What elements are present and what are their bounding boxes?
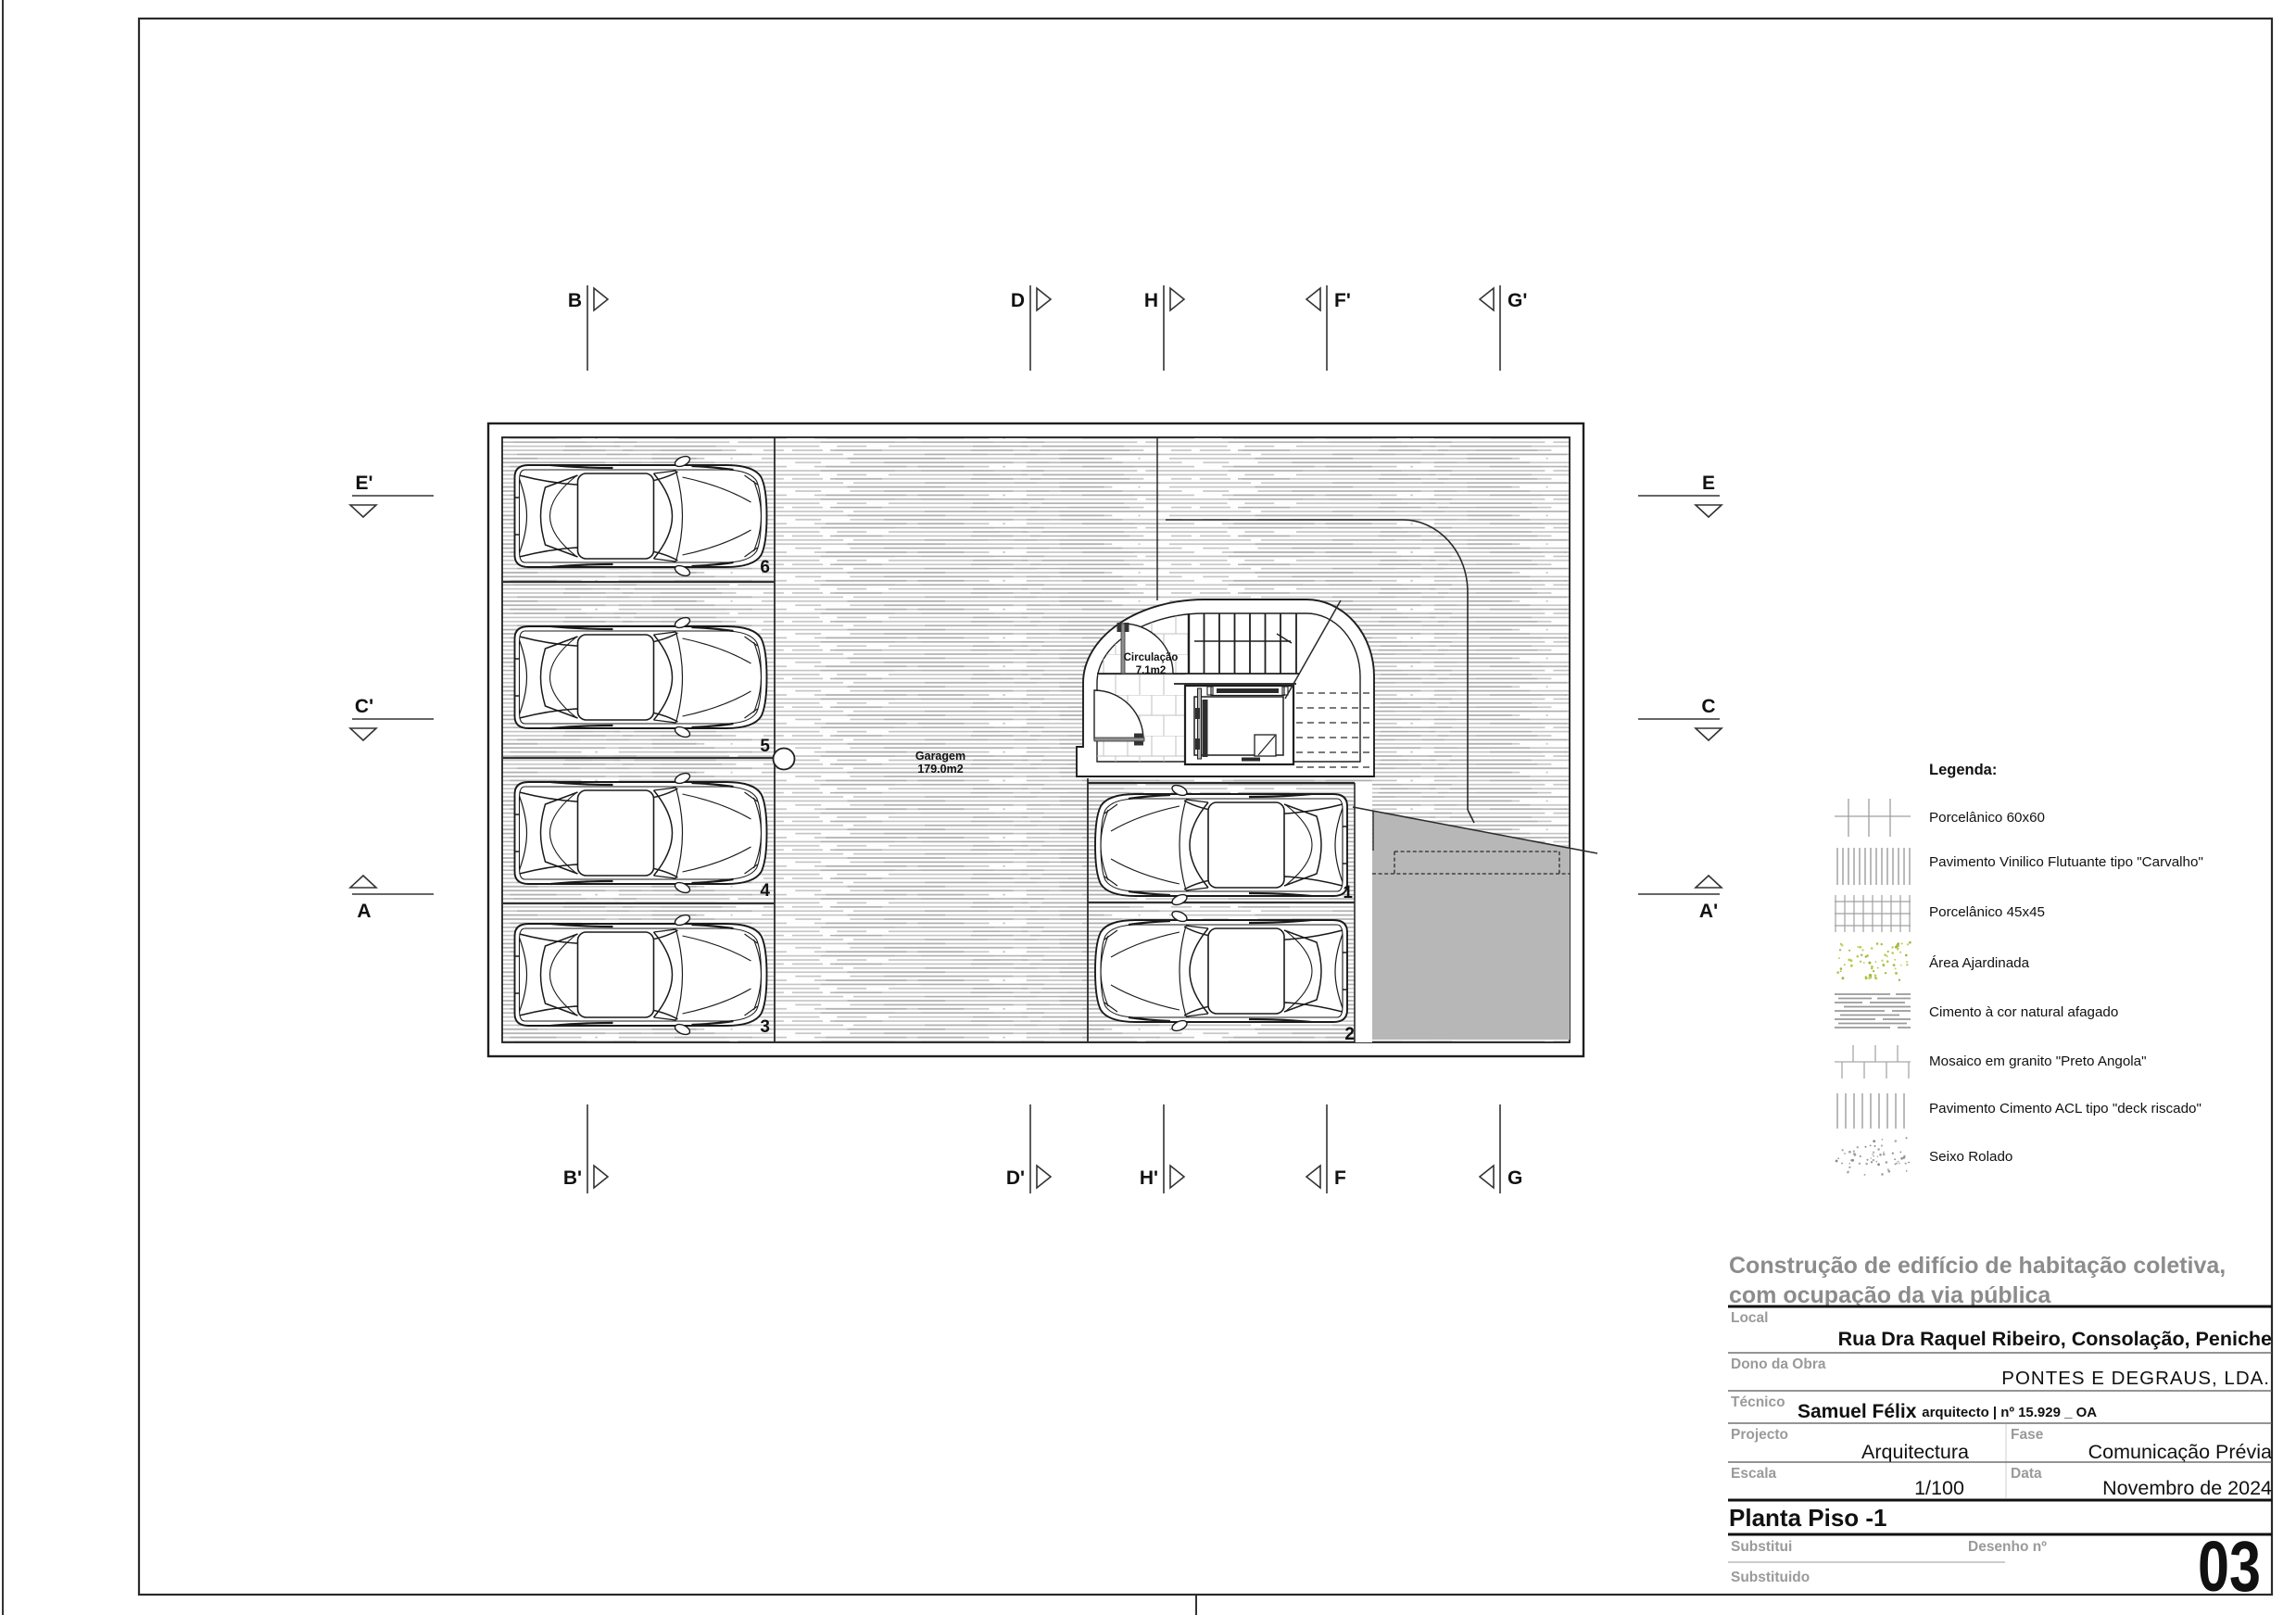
svg-text:Comunicação Prévia: Comunicação Prévia [2088,1441,2272,1463]
svg-text:Pavimento Vinilico Flutuante t: Pavimento Vinilico Flutuante tipo "Carva… [1929,854,2203,870]
svg-text:Construção de edifício de habi: Construção de edifício de habitação cole… [1729,1253,2226,1279]
svg-text:F': F' [1334,290,1351,311]
svg-text:1: 1 [1343,883,1353,902]
svg-text:Dono da Obra: Dono da Obra [1731,1356,1826,1372]
svg-text:2: 2 [1344,1025,1355,1044]
svg-text:Mosaico em granito "Preto Ango: Mosaico em granito "Preto Angola" [1929,1054,2147,1069]
svg-text:G: G [1508,1167,1522,1189]
svg-text:Cimento à cor natural afagado: Cimento à cor natural afagado [1929,1004,2118,1020]
svg-text:Escala: Escala [1731,1466,1777,1482]
svg-text:Garagem: Garagem [915,750,965,763]
svg-text:C': C' [355,696,373,717]
svg-text:H': H' [1140,1167,1158,1189]
svg-text:Rua Dra Raquel Ribeiro, Consol: Rua Dra Raquel Ribeiro, Consolação, Peni… [1838,1328,2272,1350]
svg-text:D': D' [1006,1167,1025,1189]
svg-text:Porcelânico 60x60: Porcelânico 60x60 [1929,810,2045,826]
svg-text:D: D [1011,290,1025,311]
svg-text:Legenda:: Legenda: [1929,762,1997,778]
svg-text:Samuel Félix arquitecto | nº 1: Samuel Félix arquitecto | nº 15.929 _ OA [1798,1401,2097,1422]
svg-text:Substituido: Substituido [1731,1570,1810,1585]
svg-text:7.1m2: 7.1m2 [1136,665,1167,676]
svg-text:C: C [1701,696,1715,717]
svg-text:Técnico: Técnico [1731,1394,1785,1410]
svg-text:Circulação: Circulação [1124,652,1179,663]
svg-text:179.0m2: 179.0m2 [917,763,963,776]
svg-text:Pavimento Cimento ACL tipo "de: Pavimento Cimento ACL tipo "deck riscado… [1929,1101,2201,1117]
svg-text:F: F [1334,1167,1346,1189]
svg-text:A': A' [1699,901,1718,922]
svg-text:Desenho nº: Desenho nº [1968,1539,2047,1555]
svg-text:B: B [568,290,582,311]
svg-text:PONTES E DEGRAUS, LDA.: PONTES E DEGRAUS, LDA. [2001,1368,2270,1389]
svg-text:5: 5 [760,737,770,756]
svg-text:Data: Data [2011,1466,2042,1482]
svg-text:Substitui: Substitui [1731,1539,1792,1555]
svg-text:3: 3 [760,1017,770,1037]
svg-text:03: 03 [2198,1527,2261,1607]
svg-text:Seixo Rolado: Seixo Rolado [1929,1149,2012,1165]
svg-text:E': E' [355,473,372,494]
svg-text:Porcelânico 45x45: Porcelânico 45x45 [1929,904,2045,920]
svg-text:Arquitectura: Arquitectura [1861,1441,1969,1463]
svg-text:1/100: 1/100 [1914,1477,1964,1499]
svg-text:A: A [357,901,371,922]
svg-text:H: H [1144,290,1158,311]
svg-text:Fase: Fase [2011,1427,2044,1443]
svg-text:com ocupação da via pública: com ocupação da via pública [1729,1282,2051,1308]
svg-text:Local: Local [1731,1310,1768,1326]
svg-text:Novembro de 2024: Novembro de 2024 [2102,1477,2272,1499]
svg-text:4: 4 [760,881,770,901]
svg-text:Planta Piso -1: Planta Piso -1 [1729,1504,1887,1532]
svg-text:Área Ajardinada: Área Ajardinada [1929,955,2030,971]
svg-text:B': B' [563,1167,582,1189]
svg-text:G': G' [1508,290,1527,311]
svg-text:6: 6 [760,558,770,577]
svg-text:E: E [1702,473,1715,494]
svg-text:Projecto: Projecto [1731,1427,1788,1443]
